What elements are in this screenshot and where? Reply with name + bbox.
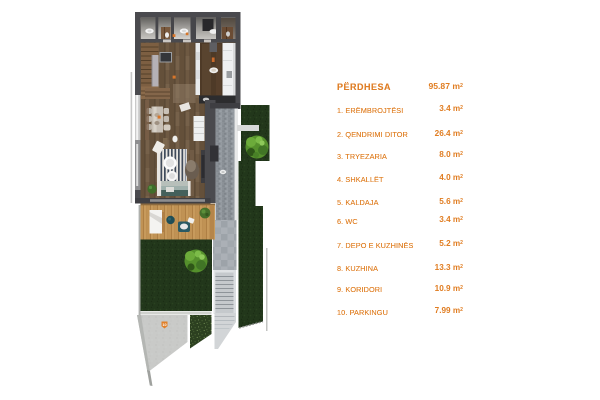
- svg-text:10: 10: [162, 323, 166, 327]
